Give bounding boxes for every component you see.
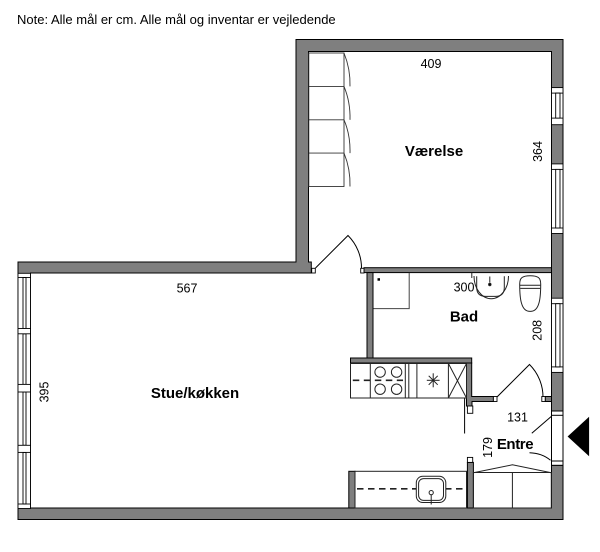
svg-text:131: 131 bbox=[507, 411, 528, 425]
svg-text:Entre: Entre bbox=[497, 436, 533, 453]
svg-text:Stue/køkken: Stue/køkken bbox=[151, 385, 239, 402]
svg-text:364: 364 bbox=[531, 141, 545, 162]
svg-text:Værelse: Værelse bbox=[405, 143, 463, 160]
svg-text:Bad: Bad bbox=[450, 309, 478, 326]
svg-text:300: 300 bbox=[454, 281, 475, 295]
svg-text:Note: Alle mål er cm. Alle mål: Note: Alle mål er cm. Alle mål og invent… bbox=[17, 12, 336, 27]
svg-text:409: 409 bbox=[421, 57, 442, 71]
svg-text:179: 179 bbox=[481, 437, 495, 458]
svg-text:567: 567 bbox=[177, 282, 198, 296]
svg-text:395: 395 bbox=[38, 382, 52, 403]
svg-text:208: 208 bbox=[531, 320, 545, 341]
